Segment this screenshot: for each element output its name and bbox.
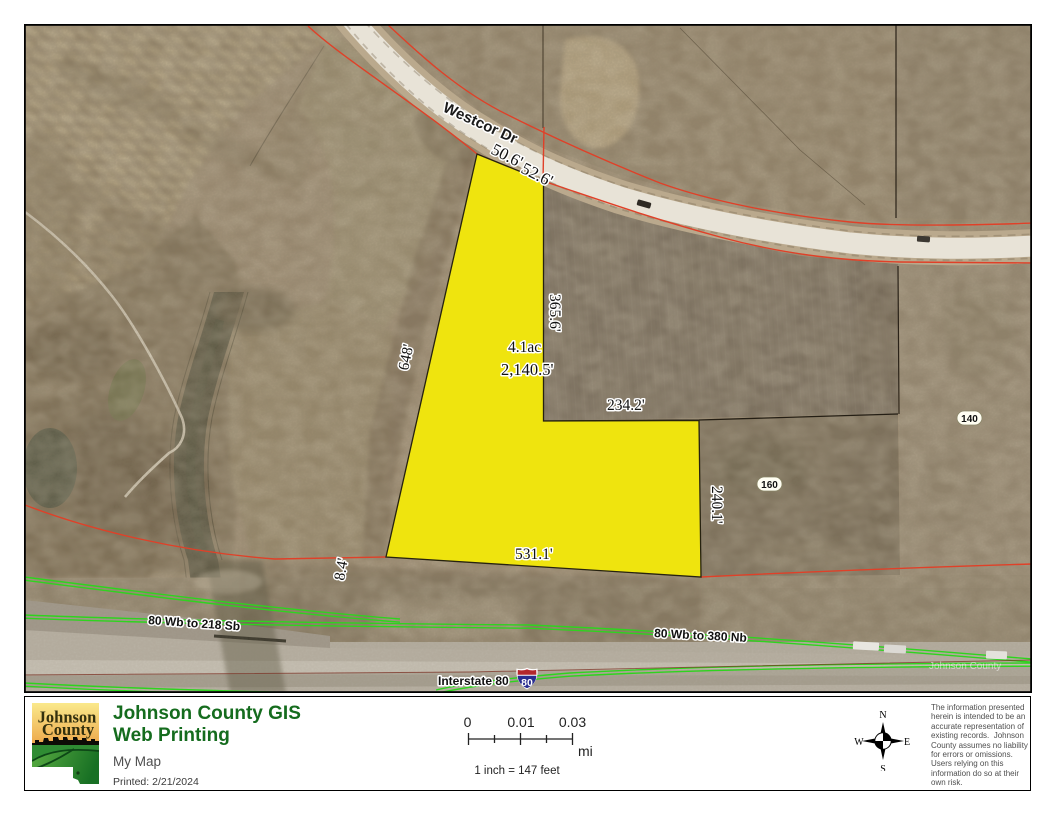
svg-text:140: 140 xyxy=(961,414,978,425)
svg-text:0: 0 xyxy=(464,714,472,730)
svg-text:160: 160 xyxy=(761,480,778,491)
svg-text:365.6': 365.6' xyxy=(546,294,563,332)
svg-text:4.1ac: 4.1ac xyxy=(508,339,541,356)
svg-text:E: E xyxy=(904,737,910,748)
svg-text:County: County xyxy=(42,720,95,739)
svg-text:240.1': 240.1' xyxy=(708,486,725,524)
svg-text:mi: mi xyxy=(578,743,593,759)
svg-text:1 inch = 147 feet: 1 inch = 147 feet xyxy=(474,765,560,777)
svg-text:Johnson County: Johnson County xyxy=(929,661,1001,672)
svg-text:0.03: 0.03 xyxy=(559,714,586,730)
svg-text:0.01: 0.01 xyxy=(507,714,534,730)
svg-text:Interstate 80: Interstate 80 xyxy=(438,674,509,688)
svg-text:80: 80 xyxy=(521,677,533,689)
svg-text:W: W xyxy=(854,737,864,748)
svg-text:S: S xyxy=(880,764,886,771)
svg-text:531.1': 531.1' xyxy=(515,546,553,563)
svg-text:234.2': 234.2' xyxy=(607,397,645,414)
svg-text:2,140.5': 2,140.5' xyxy=(501,360,554,379)
svg-text:N: N xyxy=(879,710,886,721)
